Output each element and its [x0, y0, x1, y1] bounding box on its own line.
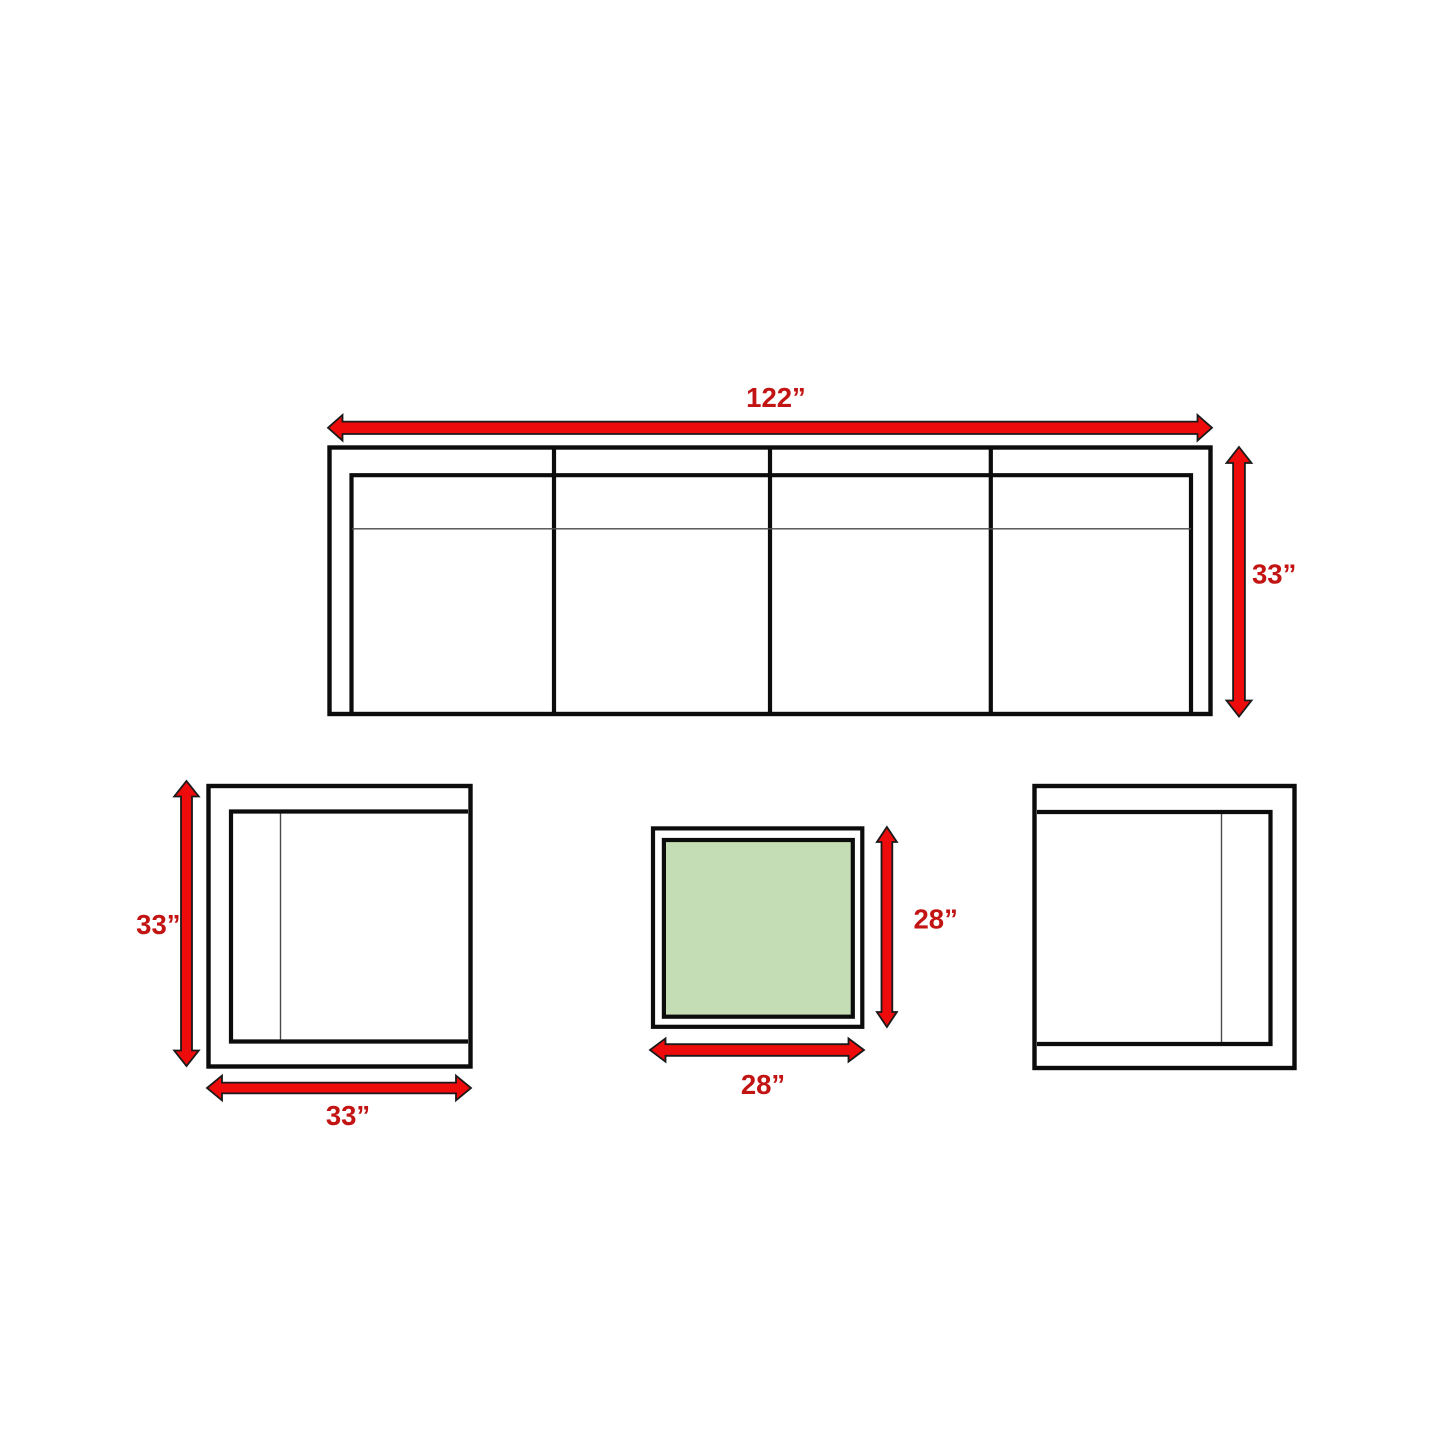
svg-text:33”: 33” — [136, 909, 180, 940]
svg-text:28”: 28” — [914, 904, 958, 935]
svg-text:33”: 33” — [1252, 559, 1296, 590]
svg-text:33”: 33” — [326, 1100, 370, 1131]
svg-text:122”: 122” — [746, 382, 806, 413]
svg-text:28”: 28” — [741, 1069, 785, 1100]
